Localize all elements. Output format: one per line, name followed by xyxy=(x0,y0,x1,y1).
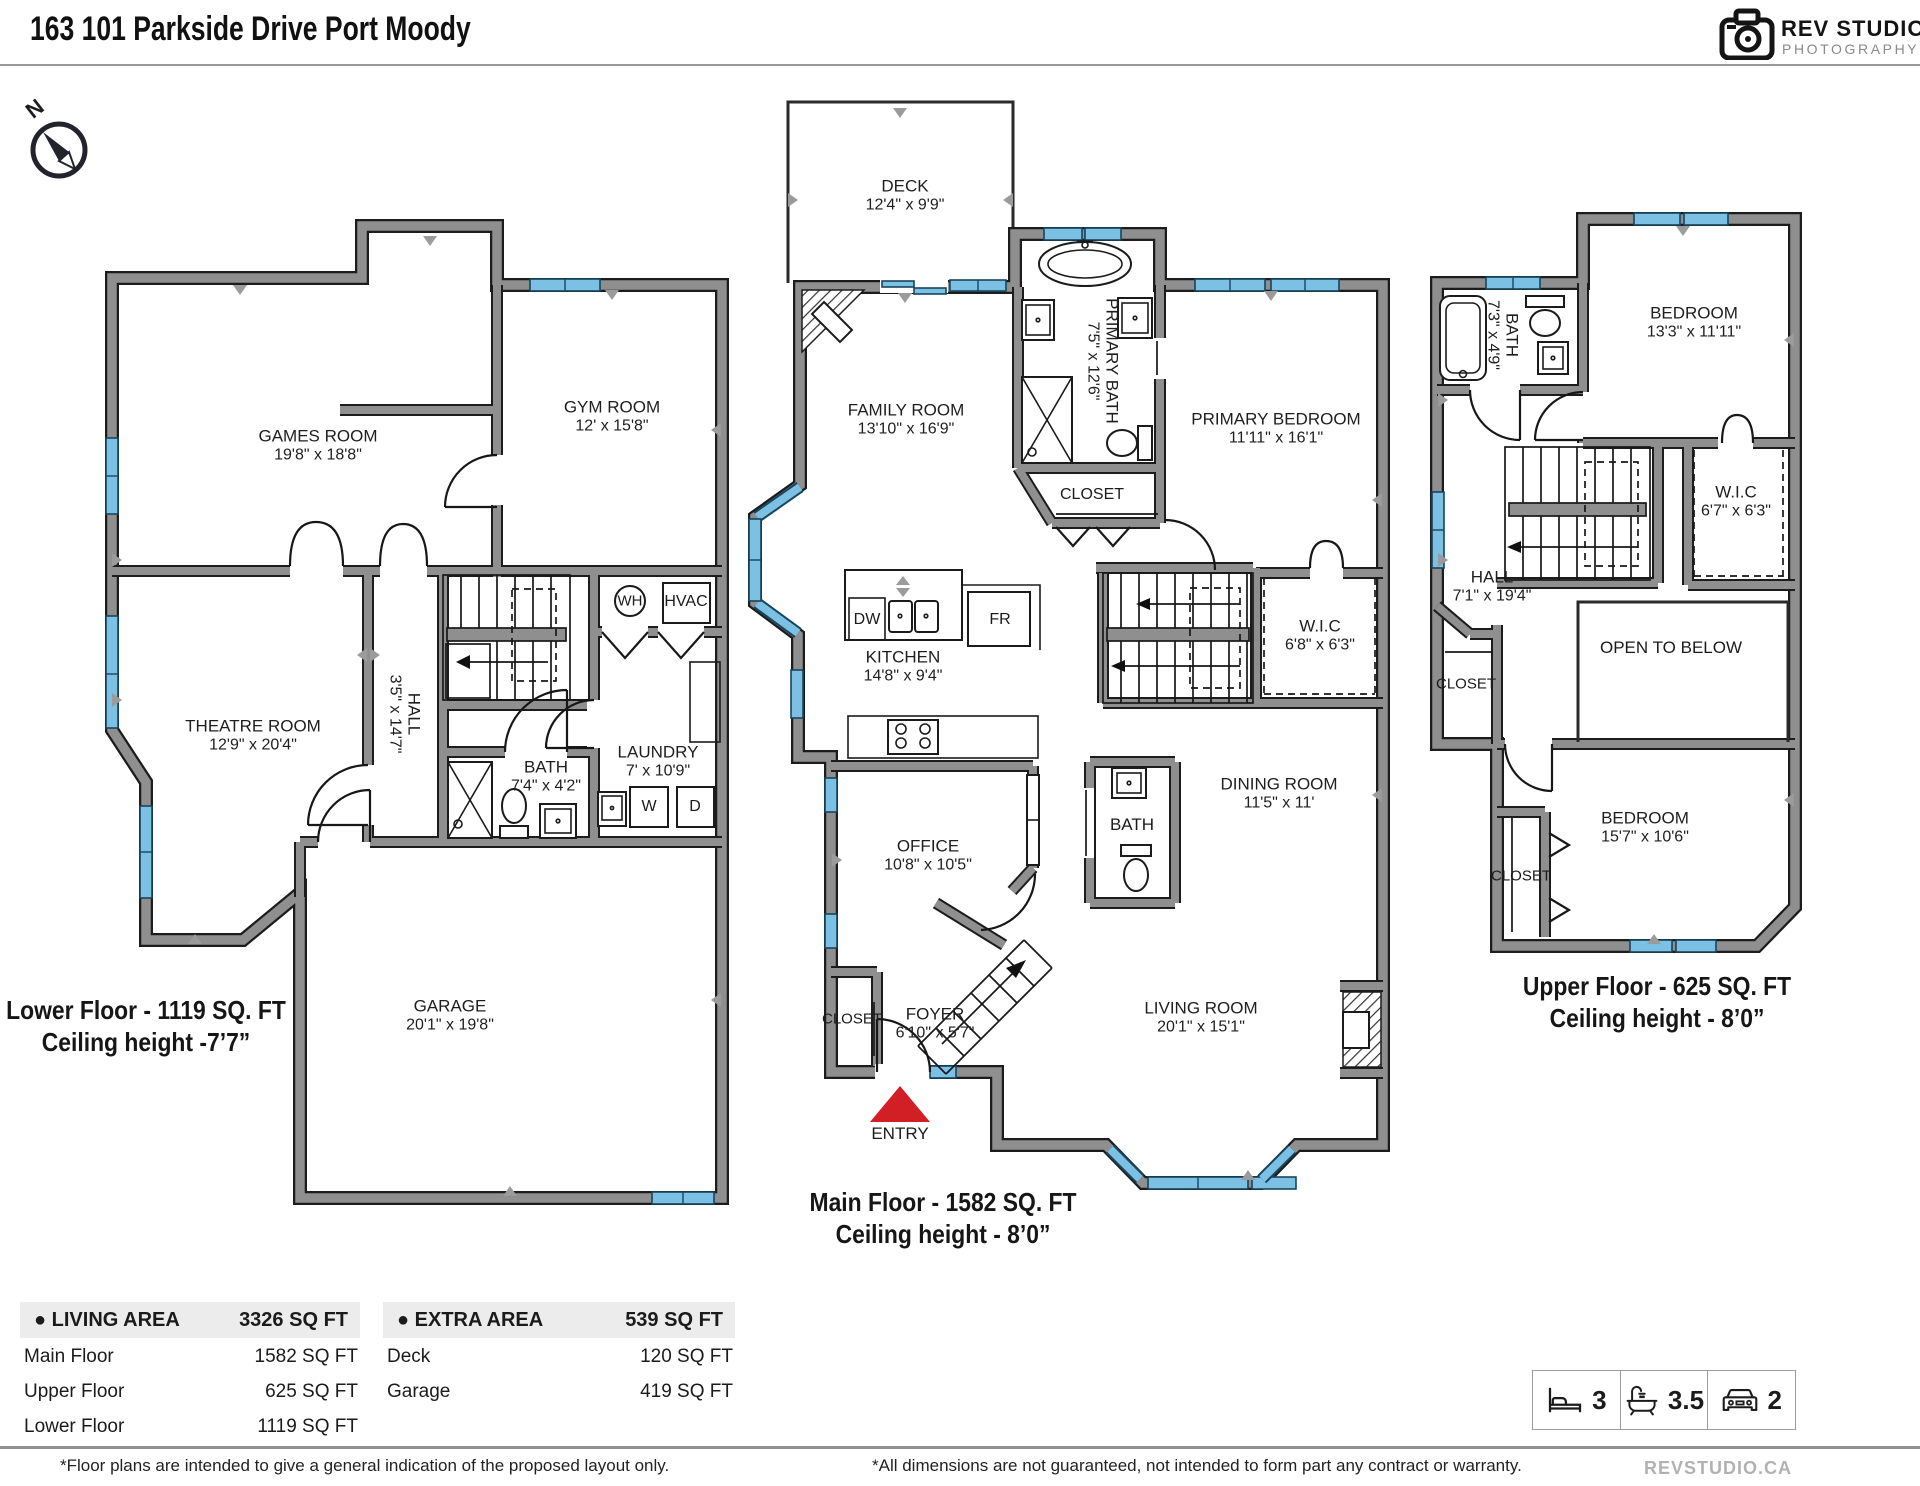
room-name: THEATRE ROOM xyxy=(185,717,321,737)
table-row: Deck120 SQ FT xyxy=(383,1338,735,1373)
kitchen-sink-icon xyxy=(889,601,912,632)
room-name: BEDROOM xyxy=(1647,304,1741,324)
room-label-bedroom2: BEDROOM15'7" x 10'6" xyxy=(1601,809,1689,848)
footnote-center: *All dimensions are not guaranteed, not … xyxy=(872,1456,1522,1476)
room-dims: 7'5" x 12'6" xyxy=(1083,298,1102,424)
room-name: HALL xyxy=(403,675,423,754)
parking-badge: 2 xyxy=(1707,1371,1795,1429)
room-dims: 11'5" x 11' xyxy=(1220,795,1337,814)
closet-label: CLOSET xyxy=(1060,486,1124,504)
room-name: BATH xyxy=(1501,300,1521,370)
car-icon xyxy=(1721,1385,1759,1415)
room-label-deck: DECK12'4" x 9'9" xyxy=(866,177,945,216)
room-label-wic-upper: W.I.C6'7" x 6'3" xyxy=(1701,483,1771,522)
living-area-header: ● LIVING AREA 3326 SQ FT xyxy=(20,1302,360,1338)
room-label-bath-lower: BATH7'4" x 4'2" xyxy=(511,758,581,797)
room-dims: 7'1" x 19'4" xyxy=(1453,588,1532,607)
property-stats-badges: 3 3.5 2 xyxy=(1532,1370,1796,1430)
room-dims: 13'10" x 16'9" xyxy=(848,421,965,440)
room-name: W.I.C xyxy=(1701,483,1771,503)
room-label-theatre: THEATRE ROOM12'9" x 20'4" xyxy=(185,717,321,756)
room-dims: 6'8" x 6'3" xyxy=(1285,637,1355,656)
closet-hall-label: CLOSET xyxy=(1436,676,1496,693)
room-dims: 3'5" x 14'7" xyxy=(385,675,404,754)
room-dims: 6'10" x 5'7" xyxy=(896,1025,975,1044)
room-label-foyer: FOYER6'10" x 5'7" xyxy=(896,1005,975,1044)
water-heater-label: WH xyxy=(618,593,643,610)
room-label-games: GAMES ROOM19'8" x 18'8" xyxy=(258,427,377,466)
upper-floor-caption: Upper Floor - 625 SQ. FTCeiling height -… xyxy=(1523,970,1791,1034)
sink-icon xyxy=(1022,300,1054,340)
entry-arrow xyxy=(870,1086,930,1122)
dryer-label: D xyxy=(689,798,701,816)
bullet-icon: ● xyxy=(397,1309,409,1331)
room-dims: 10'8" x 10'5" xyxy=(884,857,972,876)
toilet-icon xyxy=(1121,845,1151,856)
room-name: GARAGE xyxy=(406,997,494,1017)
footnote-left: *Floor plans are intended to give a gene… xyxy=(60,1456,669,1476)
room-label-hall-upper: HALL7'1" x 19'4" xyxy=(1453,568,1532,607)
room-label-primary-bath: PRIMARY BATH7'5" x 12'6" xyxy=(1083,298,1122,424)
room-label-garage: GARAGE20'1" x 19'8" xyxy=(406,997,494,1036)
room-name: LAUNDRY xyxy=(618,743,699,763)
room-name: PRIMARY BEDROOM xyxy=(1191,410,1360,430)
room-label-primary-bedroom: PRIMARY BEDROOM11'11" x 16'1" xyxy=(1191,410,1360,449)
room-label-living: LIVING ROOM20'1" x 15'1" xyxy=(1144,999,1257,1038)
extra-area-header: ● EXTRA AREA 539 SQ FT xyxy=(383,1302,735,1338)
room-name: DECK xyxy=(866,177,945,197)
room-name: KITCHEN xyxy=(864,648,943,668)
website-link: REVSTUDIO.CA xyxy=(1644,1458,1792,1479)
room-label-family: FAMILY ROOM13'10" x 16'9" xyxy=(848,401,965,440)
room-dims: 15'7" x 10'6" xyxy=(1601,829,1689,848)
room-name: LIVING ROOM xyxy=(1144,999,1257,1019)
table-row: Main Floor1582 SQ FT xyxy=(20,1338,360,1373)
room-label-bath-upper: BATH7'3" x 4'9" xyxy=(1483,300,1522,370)
hvac-label: HVAC xyxy=(664,593,707,611)
table-row: Garage419 SQ FT xyxy=(383,1373,735,1408)
table-row: Upper Floor625 SQ FT xyxy=(20,1373,360,1408)
bath-icon xyxy=(1624,1384,1660,1416)
open-to-below-label: OPEN TO BELOW xyxy=(1600,638,1742,658)
room-dims: 12'4" x 9'9" xyxy=(866,197,945,216)
washer-label: W xyxy=(641,798,656,816)
footer-divider xyxy=(0,1446,1920,1449)
room-name: FOYER xyxy=(896,1005,975,1025)
room-name: BATH xyxy=(511,758,581,778)
sink-icon xyxy=(1118,298,1152,338)
room-label-bedroom1: BEDROOM13'3" x 11'11" xyxy=(1647,304,1741,343)
living-area-table: ● LIVING AREA 3326 SQ FT Main Floor1582 … xyxy=(20,1302,360,1443)
closet-foyer-label: CLOSET xyxy=(822,1011,882,1028)
toilet-icon xyxy=(1138,426,1152,460)
room-dims: 19'8" x 18'8" xyxy=(258,447,377,466)
floor-plan-page: 163 101 Parkside Drive Port Moody REV ST… xyxy=(0,0,1920,1486)
dishwasher-label: DW xyxy=(854,611,881,629)
room-dims: 7'3" x 4'9" xyxy=(1483,300,1502,370)
bullet-icon: ● xyxy=(34,1309,46,1331)
fridge-label: FR xyxy=(989,611,1010,629)
room-label-kitchen: KITCHEN14'8" x 9'4" xyxy=(864,648,943,687)
room-dims: 6'7" x 6'3" xyxy=(1701,503,1771,522)
room-dims: 12'9" x 20'4" xyxy=(185,737,321,756)
room-name: PRIMARY BATH xyxy=(1101,298,1121,424)
room-dims: 12' x 15'8" xyxy=(564,418,660,437)
bed-icon xyxy=(1546,1385,1584,1415)
room-name: BEDROOM xyxy=(1601,809,1689,829)
door-gap xyxy=(587,700,601,748)
toilet-icon xyxy=(500,826,528,838)
table-row: Lower Floor1119 SQ FT xyxy=(20,1408,360,1443)
beds-badge: 3 xyxy=(1533,1371,1620,1429)
room-dims: 13'3" x 11'11" xyxy=(1647,324,1741,343)
room-name: GYM ROOM xyxy=(564,398,660,418)
extra-area-table: ● EXTRA AREA 539 SQ FT Deck120 SQ FT Gar… xyxy=(383,1302,735,1408)
room-label-hall-lower: HALL3'5" x 14'7" xyxy=(385,675,424,754)
room-name: GAMES ROOM xyxy=(258,427,377,447)
baths-badge: 3.5 xyxy=(1620,1371,1708,1429)
entry-label: ENTRY xyxy=(871,1124,928,1144)
room-dims: 20'1" x 15'1" xyxy=(1144,1019,1257,1038)
room-label-office: OFFICE10'8" x 10'5" xyxy=(884,837,972,876)
room-dims: 11'11" x 16'1" xyxy=(1191,430,1360,449)
room-dims: 14'8" x 9'4" xyxy=(864,668,943,687)
closet-bed2-label: CLOSET xyxy=(1491,868,1551,885)
room-label-dining: DINING ROOM11'5" x 11' xyxy=(1220,775,1337,814)
stove-icon xyxy=(888,720,938,754)
room-name: W.I.C xyxy=(1285,617,1355,637)
room-name: HALL xyxy=(1453,568,1532,588)
room-label-gym: GYM ROOM12' x 15'8" xyxy=(564,398,660,437)
main-floor-caption: Main Floor - 1582 SQ. FTCeiling height -… xyxy=(810,1186,1077,1250)
room-label-laundry: LAUNDRY7' x 10'9" xyxy=(618,743,699,782)
room-name: OFFICE xyxy=(884,837,972,857)
room-name: DINING ROOM xyxy=(1220,775,1337,795)
bath-main-label: BATH xyxy=(1110,815,1154,835)
toilet-icon xyxy=(1526,296,1564,307)
room-label-wic-main: W.I.C6'8" x 6'3" xyxy=(1285,617,1355,656)
room-dims: 7' x 10'9" xyxy=(618,763,699,782)
room-name: FAMILY ROOM xyxy=(848,401,965,421)
room-dims: 20'1" x 19'8" xyxy=(406,1017,494,1036)
room-dims: 7'4" x 4'2" xyxy=(511,778,581,797)
lower-floor-caption: Lower Floor - 1119 SQ. FTCeiling height … xyxy=(6,994,286,1058)
